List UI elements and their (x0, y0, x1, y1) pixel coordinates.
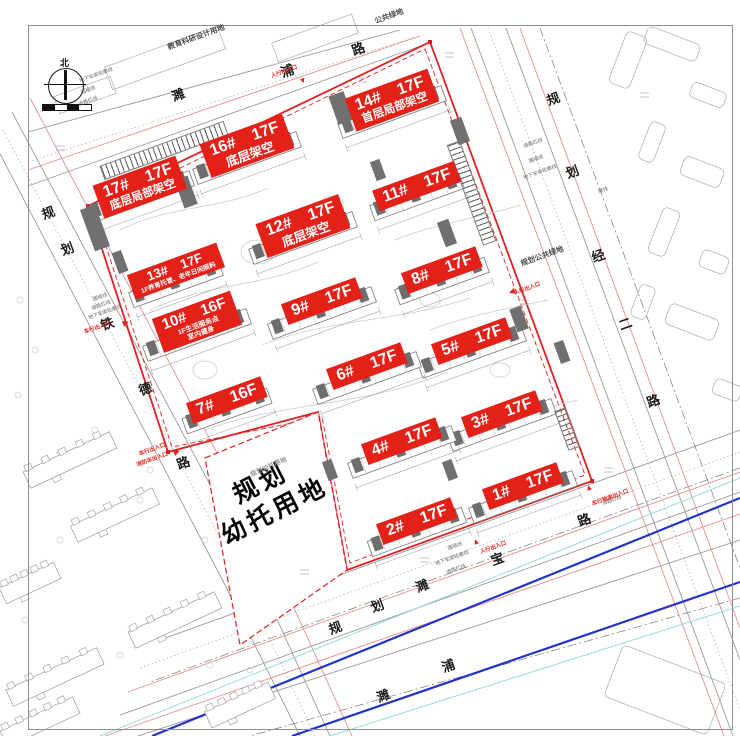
building-number: 7# (194, 396, 217, 419)
tree-mark (17, 297, 23, 303)
building-number: 8# (409, 266, 432, 289)
building-number: 6# (334, 362, 357, 385)
building-number: 4# (369, 437, 392, 460)
building-number: 5# (439, 337, 462, 360)
building-number: 3# (469, 410, 492, 433)
drawing-frame (28, 25, 733, 730)
building-number: 2# (384, 517, 407, 540)
building-number: 1# (490, 482, 513, 505)
tree-mark (15, 392, 21, 398)
site-plan-canvas: 北 规划 幼托用地 17#17F底层局部架空16#17F底层架空14#17F首层… (0, 0, 740, 736)
building-number: 9# (289, 297, 312, 320)
compass-needle-icon (64, 70, 67, 100)
